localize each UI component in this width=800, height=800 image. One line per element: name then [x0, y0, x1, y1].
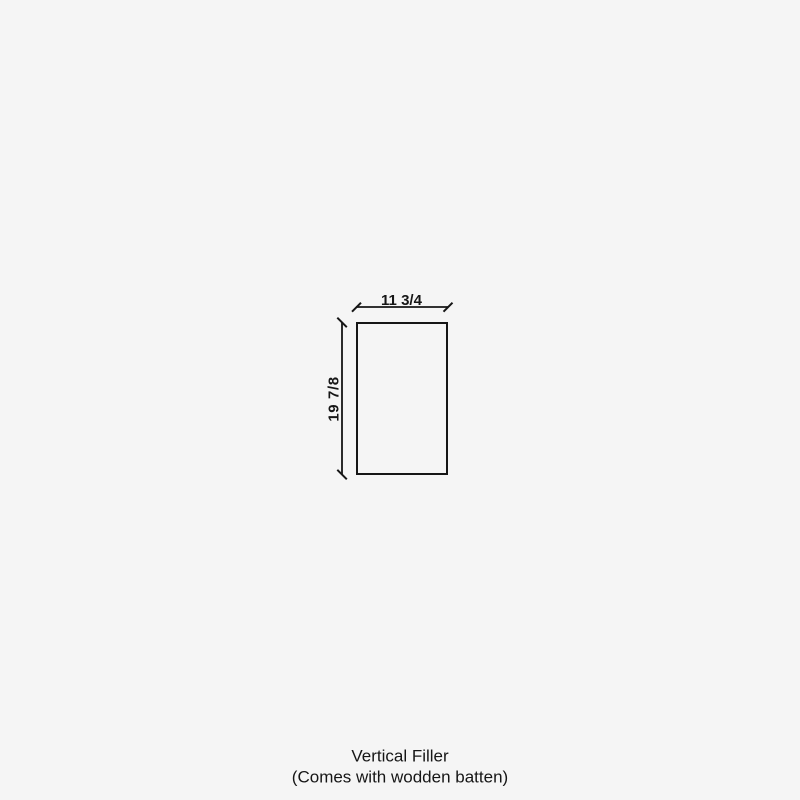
svg-text:11 3/4: 11 3/4	[381, 292, 423, 309]
svg-text:19 7/8: 19 7/8	[326, 376, 343, 421]
svg-text:(Comes with wodden batten): (Comes with wodden batten)	[292, 768, 508, 787]
svg-text:Vertical Filler: Vertical Filler	[351, 747, 449, 766]
